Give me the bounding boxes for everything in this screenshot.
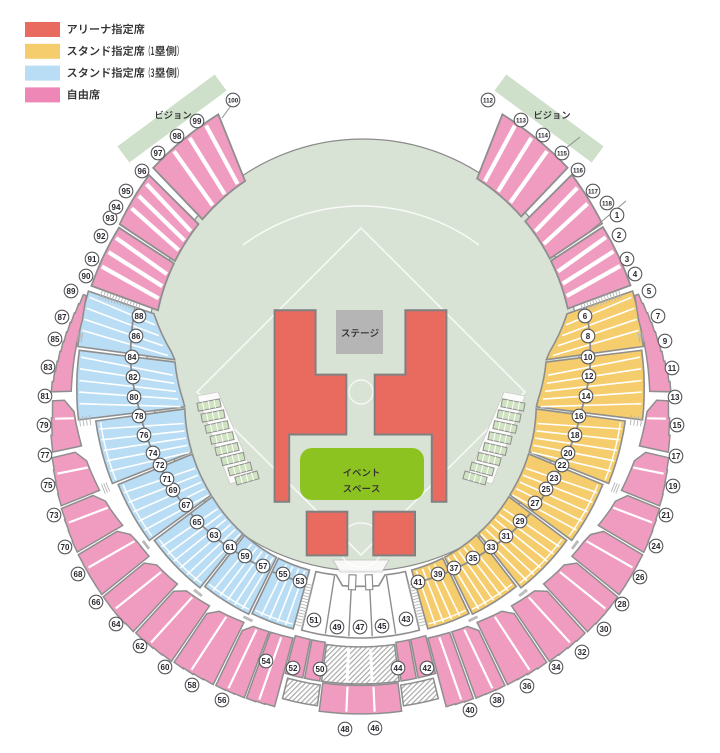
svg-text:31: 31	[502, 532, 511, 541]
svg-text:59: 59	[241, 552, 250, 561]
svg-text:96: 96	[138, 167, 147, 176]
svg-text:55: 55	[279, 570, 288, 579]
svg-text:17: 17	[672, 452, 681, 461]
svg-text:13: 13	[671, 393, 680, 402]
svg-text:67: 67	[182, 501, 191, 510]
svg-text:92: 92	[97, 232, 106, 241]
svg-text:11: 11	[668, 364, 677, 373]
svg-text:30: 30	[600, 625, 609, 634]
svg-text:41: 41	[414, 578, 423, 587]
svg-text:85: 85	[51, 335, 60, 344]
svg-text:78: 78	[135, 412, 144, 421]
svg-text:42: 42	[423, 664, 432, 673]
svg-text:49: 49	[333, 623, 342, 632]
svg-text:94: 94	[112, 203, 121, 212]
svg-text:86: 86	[132, 332, 141, 341]
svg-text:16: 16	[575, 412, 584, 421]
svg-text:115: 115	[557, 150, 568, 157]
svg-text:27: 27	[531, 499, 540, 508]
svg-text:33: 33	[487, 543, 496, 552]
svg-text:99: 99	[193, 117, 202, 126]
svg-text:18: 18	[571, 431, 580, 440]
svg-text:93: 93	[106, 214, 115, 223]
svg-text:98: 98	[173, 132, 182, 141]
svg-text:66: 66	[92, 598, 101, 607]
svg-text:71: 71	[163, 475, 172, 484]
svg-text:82: 82	[129, 373, 138, 382]
svg-text:26: 26	[636, 573, 645, 582]
svg-text:47: 47	[356, 623, 365, 632]
svg-text:2: 2	[617, 231, 622, 240]
svg-text:62: 62	[136, 642, 145, 651]
svg-text:24: 24	[652, 542, 661, 551]
svg-text:53: 53	[296, 577, 305, 586]
svg-text:95: 95	[122, 187, 131, 196]
svg-text:52: 52	[289, 664, 298, 673]
svg-text:61: 61	[226, 543, 235, 552]
svg-text:56: 56	[218, 696, 227, 705]
svg-text:116: 116	[573, 167, 584, 174]
svg-text:73: 73	[50, 511, 59, 520]
svg-text:23: 23	[550, 474, 559, 483]
svg-text:83: 83	[44, 363, 53, 372]
svg-text:48: 48	[341, 725, 350, 734]
svg-text:39: 39	[434, 570, 443, 579]
svg-text:1: 1	[615, 211, 620, 220]
svg-text:14: 14	[582, 392, 591, 401]
svg-text:51: 51	[310, 616, 319, 625]
svg-text:118: 118	[602, 200, 613, 207]
svg-text:38: 38	[493, 696, 502, 705]
svg-text:36: 36	[523, 682, 532, 691]
svg-text:34: 34	[552, 663, 561, 672]
svg-text:84: 84	[128, 353, 137, 362]
svg-text:113: 113	[516, 117, 527, 124]
svg-text:29: 29	[516, 517, 525, 526]
svg-text:45: 45	[378, 622, 387, 631]
svg-text:25: 25	[542, 485, 551, 494]
svg-text:114: 114	[538, 132, 549, 139]
svg-text:43: 43	[402, 615, 411, 624]
svg-text:19: 19	[669, 482, 678, 491]
svg-text:44: 44	[394, 664, 403, 673]
svg-text:64: 64	[112, 620, 121, 629]
svg-text:87: 87	[58, 313, 67, 322]
svg-text:3: 3	[625, 255, 630, 264]
svg-text:12: 12	[585, 372, 594, 381]
svg-text:75: 75	[44, 481, 53, 490]
svg-text:35: 35	[469, 554, 478, 563]
svg-text:40: 40	[466, 706, 475, 715]
svg-text:50: 50	[316, 665, 325, 674]
svg-text:80: 80	[130, 393, 139, 402]
svg-text:100: 100	[228, 97, 239, 104]
svg-text:57: 57	[259, 562, 268, 571]
svg-text:58: 58	[188, 681, 197, 690]
svg-text:28: 28	[618, 600, 627, 609]
svg-text:88: 88	[135, 312, 144, 321]
svg-text:69: 69	[169, 486, 178, 495]
svg-text:89: 89	[67, 287, 76, 296]
svg-text:46: 46	[371, 724, 380, 733]
svg-text:91: 91	[88, 255, 97, 264]
svg-text:81: 81	[41, 392, 50, 401]
svg-text:15: 15	[673, 421, 682, 430]
svg-text:21: 21	[662, 511, 671, 520]
svg-text:117: 117	[588, 188, 599, 195]
svg-text:79: 79	[40, 421, 49, 430]
svg-text:37: 37	[450, 564, 459, 573]
svg-text:97: 97	[154, 149, 163, 158]
svg-text:4: 4	[633, 270, 638, 279]
svg-text:7: 7	[656, 312, 661, 321]
svg-text:72: 72	[156, 461, 165, 470]
svg-text:60: 60	[161, 663, 170, 672]
svg-text:20: 20	[564, 449, 573, 458]
svg-text:90: 90	[82, 272, 91, 281]
svg-text:74: 74	[149, 449, 158, 458]
svg-text:76: 76	[140, 431, 149, 440]
svg-text:70: 70	[61, 543, 70, 552]
svg-text:32: 32	[578, 648, 587, 657]
svg-text:54: 54	[262, 657, 271, 666]
svg-text:22: 22	[558, 461, 567, 470]
svg-text:6: 6	[583, 312, 588, 321]
svg-text:8: 8	[586, 332, 591, 341]
svg-text:77: 77	[41, 451, 50, 460]
svg-text:9: 9	[663, 337, 668, 346]
svg-text:10: 10	[584, 353, 593, 362]
svg-text:65: 65	[193, 518, 202, 527]
svg-text:5: 5	[647, 287, 652, 296]
svg-text:112: 112	[483, 97, 494, 104]
svg-text:68: 68	[74, 570, 83, 579]
svg-text:63: 63	[210, 531, 219, 540]
